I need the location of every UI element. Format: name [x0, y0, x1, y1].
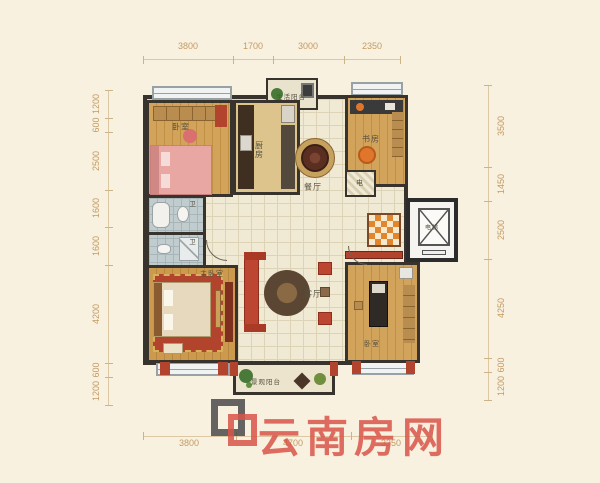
room-bedroom-bottom-right: [345, 262, 420, 363]
dim-tick: [344, 56, 345, 64]
dim-left-8: 1200: [91, 381, 101, 401]
fridge-icon: [281, 105, 295, 123]
rug-small-icon: [163, 343, 183, 354]
dim-left-3: 2500: [91, 151, 101, 171]
dim-line-left: [108, 90, 109, 405]
bay-window-study: [351, 82, 403, 96]
dim-tick: [105, 227, 113, 228]
label-master-bedroom: 主卧室: [200, 269, 224, 279]
pillow-icon: [164, 314, 173, 330]
floorplan-canvas: 3800 1700 3000 2350 1200 600 2500 1600 1…: [0, 0, 600, 483]
dim-tick: [105, 363, 113, 364]
dim-tick: [484, 85, 492, 86]
dim-tick: [105, 118, 113, 119]
pillow-icon: [161, 174, 170, 188]
dim-left-1: 1200: [91, 94, 101, 114]
bay-window-bedroom-tl: [152, 86, 232, 100]
label-service-balcony: 生活阳台: [276, 91, 306, 101]
dim-tick: [105, 190, 113, 191]
sofa-armrest-icon: [244, 324, 266, 332]
label-kitchen: 厨房: [254, 141, 265, 159]
label-bedroom-bottom-right: 卧室: [364, 339, 380, 349]
bookshelf-icon: [392, 112, 403, 157]
bed-double-icon: [150, 145, 212, 195]
kitchen-cabinet-icon: [281, 125, 295, 189]
dim-tick: [143, 432, 144, 440]
dim-tick: [484, 400, 492, 401]
dining-table-icon: [301, 144, 329, 172]
dim-right-2: 1450: [496, 174, 506, 194]
watermark-logo-square-red: [228, 414, 257, 446]
armchair-round-icon: [358, 146, 376, 164]
dim-top-1: 3800: [178, 41, 198, 51]
room-bedroom-top-left: [146, 100, 233, 197]
armchair-icon: [318, 262, 332, 275]
dim-left-6: 4200: [91, 304, 101, 324]
plant-icon: [314, 373, 326, 385]
sofa-long-icon: [244, 258, 259, 326]
dim-tick: [105, 132, 113, 133]
label-elevator: 电梯: [425, 223, 439, 232]
dim-right-6: 1200: [496, 376, 506, 396]
tv-cabinet-icon: [225, 282, 233, 342]
pillow-icon: [164, 290, 173, 306]
dim-tick: [105, 377, 113, 378]
dim-tick: [143, 56, 144, 64]
sink-icon: [157, 244, 171, 254]
bay-window-bedroom-br: [352, 361, 414, 375]
label-study: 书房: [362, 134, 380, 145]
dim-tick: [484, 358, 492, 359]
desk-paper-icon: [385, 103, 395, 110]
desk-lamp-icon: [356, 103, 364, 111]
dim-right-4: 4250: [496, 298, 506, 318]
planter-box-icon: [294, 373, 311, 390]
bed-single-icon: [369, 281, 388, 327]
dim-tick: [400, 56, 401, 64]
dim-bottom-1: 3800: [179, 438, 199, 448]
entry-checker-rug: [367, 213, 401, 247]
wardrobe-icon: [403, 285, 415, 343]
headboard-icon: [154, 283, 162, 336]
label-bath-lower: 卫: [189, 236, 197, 246]
dim-tick: [105, 405, 113, 406]
dim-left-4: 1600: [91, 198, 101, 218]
dim-tick: [484, 201, 492, 202]
room-master-bedroom: [146, 265, 238, 363]
dim-tick: [105, 90, 113, 91]
red-pillar: [230, 362, 238, 376]
dim-right-5: 600: [496, 357, 506, 372]
red-pillar: [406, 361, 415, 374]
red-pillar: [218, 362, 228, 375]
room-kitchen: [233, 100, 300, 195]
dim-right-3: 2500: [496, 220, 506, 240]
dim-tick: [233, 56, 234, 64]
dim-tick: [273, 56, 274, 64]
sofa-armrest-icon: [244, 252, 266, 260]
view-balcony: [233, 362, 335, 395]
red-pillar: [352, 361, 361, 374]
sink-icon: [240, 135, 252, 151]
dim-left-5: 1600: [91, 236, 101, 256]
dim-line-top: [143, 59, 400, 60]
bed-master-icon: [153, 282, 211, 337]
bathtub-icon: [152, 202, 170, 228]
red-pillar: [330, 362, 338, 376]
dim-tick: [484, 167, 492, 168]
pillow-icon: [161, 152, 170, 166]
label-living-room: 客厅: [304, 289, 322, 300]
label-dining: 餐厅: [304, 182, 322, 193]
label-view-balcony: 景观阳台: [251, 376, 281, 386]
dim-tick: [484, 259, 492, 260]
stool-icon: [354, 301, 363, 310]
cabinet-icon: [215, 105, 227, 127]
headboard-icon: [151, 146, 159, 194]
armchair-icon: [318, 312, 332, 325]
dim-top-3: 3000: [298, 41, 318, 51]
dim-tick: [105, 265, 113, 266]
bathroom-divider-wall: [149, 232, 203, 235]
toilet-icon: [177, 206, 189, 222]
dim-left-7: 600: [91, 362, 101, 377]
ac-unit-icon: [399, 267, 413, 279]
watermark-site-name: 云南房网: [258, 404, 450, 465]
label-bedroom-top-left: 卧室: [172, 122, 190, 133]
dim-left-2: 600: [91, 117, 101, 132]
dim-top-4: 2350: [362, 41, 382, 51]
elevator-door-icon: [422, 250, 446, 255]
dim-top-2: 1700: [243, 41, 263, 51]
pillow-icon: [372, 284, 385, 293]
dim-tick: [484, 372, 492, 373]
dim-line-right: [488, 85, 489, 400]
label-bath-upper: 卫: [189, 198, 197, 208]
bed-bench-icon: [215, 290, 221, 328]
red-pillar: [160, 362, 170, 375]
wardrobe-icon: [153, 106, 217, 121]
label-utility: 电: [356, 178, 364, 188]
dim-right-1: 3500: [496, 116, 506, 136]
